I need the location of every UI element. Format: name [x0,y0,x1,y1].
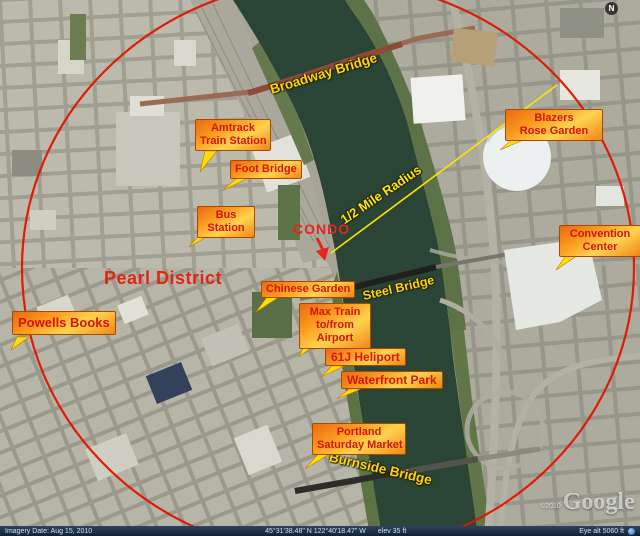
callout-blazers-rose-garden[interactable]: Blazers Rose Garden [505,109,603,141]
copyright-text: ©2010 [540,503,561,510]
callout-line: Center [564,241,636,254]
pearl-district-label: Pearl District [104,268,222,289]
callout-line: Saturday Market [317,439,401,452]
globe-icon [628,528,635,535]
eye-altitude-text: Eye alt 5060 ft [579,528,624,535]
callout-bus-station[interactable]: Bus Station [197,206,255,238]
latlon-text: 45°31'38.48" N 122°40'18.47" W [265,528,366,535]
callout-line: 61J Heliport [331,350,400,364]
google-earth-viewport[interactable]: Pearl District CONDO 1/2 Mile Radius Bro… [0,0,640,536]
coordinates-readout: 45°31'38.48" N 122°40'18.47" W elev 35 f… [92,528,579,535]
condo-label: CONDO [293,221,350,237]
callout-foot-bridge[interactable]: Foot Bridge [230,160,302,179]
callout-portland-saturday-market[interactable]: Portland Saturday Market [312,423,406,455]
callout-line: Blazers [510,112,598,125]
callout-line: Chinese Garden [266,283,350,296]
callout-line: Portland [317,426,401,439]
compass-icon[interactable]: N [605,2,618,15]
callout-convention-center[interactable]: Convention Center [559,225,640,257]
callout-line: Train Station [200,135,266,148]
google-logo: Google [563,492,635,514]
callout-line: to/from [304,319,366,332]
callout-line: Amtrack [200,122,266,135]
callout-line: Station [202,222,250,235]
callout-max-train-airport[interactable]: Max Train to/from Airport [299,303,371,349]
elevation-text: elev 35 ft [378,528,406,535]
callout-line: Powells Books [18,315,110,331]
compass-north-label: N [609,4,615,13]
callout-line: Rose Garden [510,125,598,138]
status-bar: Imagery Date: Aug 15, 2010 45°31'38.48" … [0,526,640,536]
callout-waterfront-park[interactable]: Waterfront Park [341,371,443,389]
callout-powells-books[interactable]: Powells Books [12,311,116,335]
callout-line: Bus [202,209,250,222]
callout-line: Convention [564,228,636,241]
imagery-date: Imagery Date: Aug 15, 2010 [5,528,92,535]
callout-chinese-garden[interactable]: Chinese Garden [261,281,355,298]
callout-line: Max Train [304,306,366,319]
google-watermark: ©2010 Google [540,492,635,514]
callout-line: Foot Bridge [235,163,297,176]
callout-line: Waterfront Park [347,373,437,387]
callout-61j-heliport[interactable]: 61J Heliport [325,348,406,366]
callout-line: Airport [304,332,366,345]
callout-amtrack-train-station[interactable]: Amtrack Train Station [195,119,271,151]
